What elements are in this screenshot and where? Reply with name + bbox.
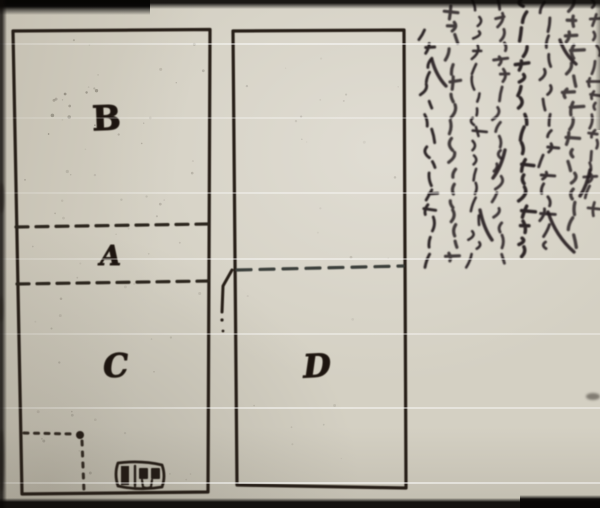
region-label-d: D [301,346,332,385]
scan-line [0,482,600,484]
paper-speck [343,100,345,102]
dotted-passage-corner [76,431,84,439]
paper-speck [115,233,117,235]
paper-speck [54,213,56,215]
paper-speck [120,199,122,201]
paper-speck [128,228,130,230]
paper-speck [185,479,187,481]
paper-speck [71,414,74,417]
paper-speck [319,207,321,209]
paper-speck [320,58,322,60]
dashed-partition-right [237,266,403,270]
paper-speck [363,141,366,144]
scan-line [0,117,600,119]
paper-speck [291,426,293,428]
handwriting-line [492,0,509,263]
paper-speck [95,89,98,92]
paper-speck [41,438,43,440]
paper-speck [198,292,201,295]
paper-speck [246,85,248,87]
paper-speck [94,174,96,176]
paper-speck [37,410,40,413]
paper-speck [159,203,162,206]
paper-speck [319,99,321,101]
paper-speck [295,120,297,122]
scan-line [0,192,600,194]
paper-speck [79,262,81,264]
edge-smudge [586,393,600,400]
paper-speck [62,217,65,220]
paper-speck [97,74,99,76]
paper-speck [58,361,60,363]
handwriting-block [419,0,600,267]
paper-speck [24,179,26,181]
paper-speck [124,285,127,288]
paper-speck [306,141,307,142]
plan-drawing: B A C D [0,0,600,508]
paper-speck [60,297,63,300]
paper-speck [341,458,342,459]
paper-speck [42,440,45,443]
paper-speck [169,473,171,475]
paper-speck [124,432,126,434]
paper-speck [323,424,325,426]
paper-speck [62,99,63,100]
paper-speck [145,195,147,197]
scan-line [0,333,600,335]
paper-speck [118,133,120,135]
region-label-c: C [102,346,131,386]
paper-speck [32,246,34,248]
scan-line [0,407,600,409]
paper-speck [153,371,155,373]
paper-speck [394,176,397,179]
handwriting-line [515,0,535,257]
paper-speck [53,99,56,102]
paper-speck [397,86,399,88]
paper-speck [351,318,354,321]
dashed-partition-upper [16,224,208,227]
paper-speck [151,338,153,340]
paper-speck [78,450,80,452]
hook-dot-1 [220,318,223,321]
paper-speck [70,174,71,175]
paper-speck [64,93,67,96]
paper-speck [179,242,181,244]
handwriting-flourish [432,60,446,86]
paper-speck [202,69,205,72]
paper-speck [141,143,143,145]
paper-speck [190,473,192,475]
paper-speck [148,253,150,255]
paper-speck [85,91,87,93]
scan-line [0,258,600,260]
paper-speck [247,295,249,297]
paper-speck [345,94,347,96]
paper-speck [176,82,177,83]
hook-mark [222,270,232,312]
handwriting-flourish [480,210,492,240]
dotted-passage-vertical [82,441,84,492]
paper-speck [89,472,92,475]
handwriting-line [562,0,584,247]
paper-speck [163,199,165,201]
handwriting-flourish [548,212,574,252]
region-label-a: A [97,241,121,272]
paper-speck [191,172,194,175]
paper-speck [159,68,162,71]
paper-speck [291,443,293,445]
manuscript-photo: B A C D [0,0,600,508]
paper-speck [68,105,71,108]
paper-speck [88,86,90,88]
paper-speck [59,314,62,317]
paper-speck [50,327,52,329]
paper-speck [73,39,75,41]
paper-speck [301,139,303,141]
paper-speck [48,133,50,135]
hook-dot-2 [222,330,225,333]
paper-speck [76,277,78,279]
paper-speck [93,87,95,89]
paper-speck [156,215,158,217]
scan-line [0,43,600,45]
paper-speck [34,321,36,323]
paper-speck [133,283,135,285]
paper-speck [317,232,319,234]
paper-speck [61,200,63,202]
paper-speck [285,68,286,69]
paper-speck [85,148,87,150]
paper-speck [66,170,69,173]
paper-speck [192,160,194,162]
paper-speck [94,124,96,126]
paper-speck [62,119,64,121]
paper-speck [71,411,73,413]
paper-speck [94,418,97,421]
dashed-partition-lower [17,281,209,284]
dotted-passage-horizontal [24,433,74,434]
paper-speck [143,123,144,124]
structure-sketch [116,462,164,489]
paper-speck [170,336,172,338]
